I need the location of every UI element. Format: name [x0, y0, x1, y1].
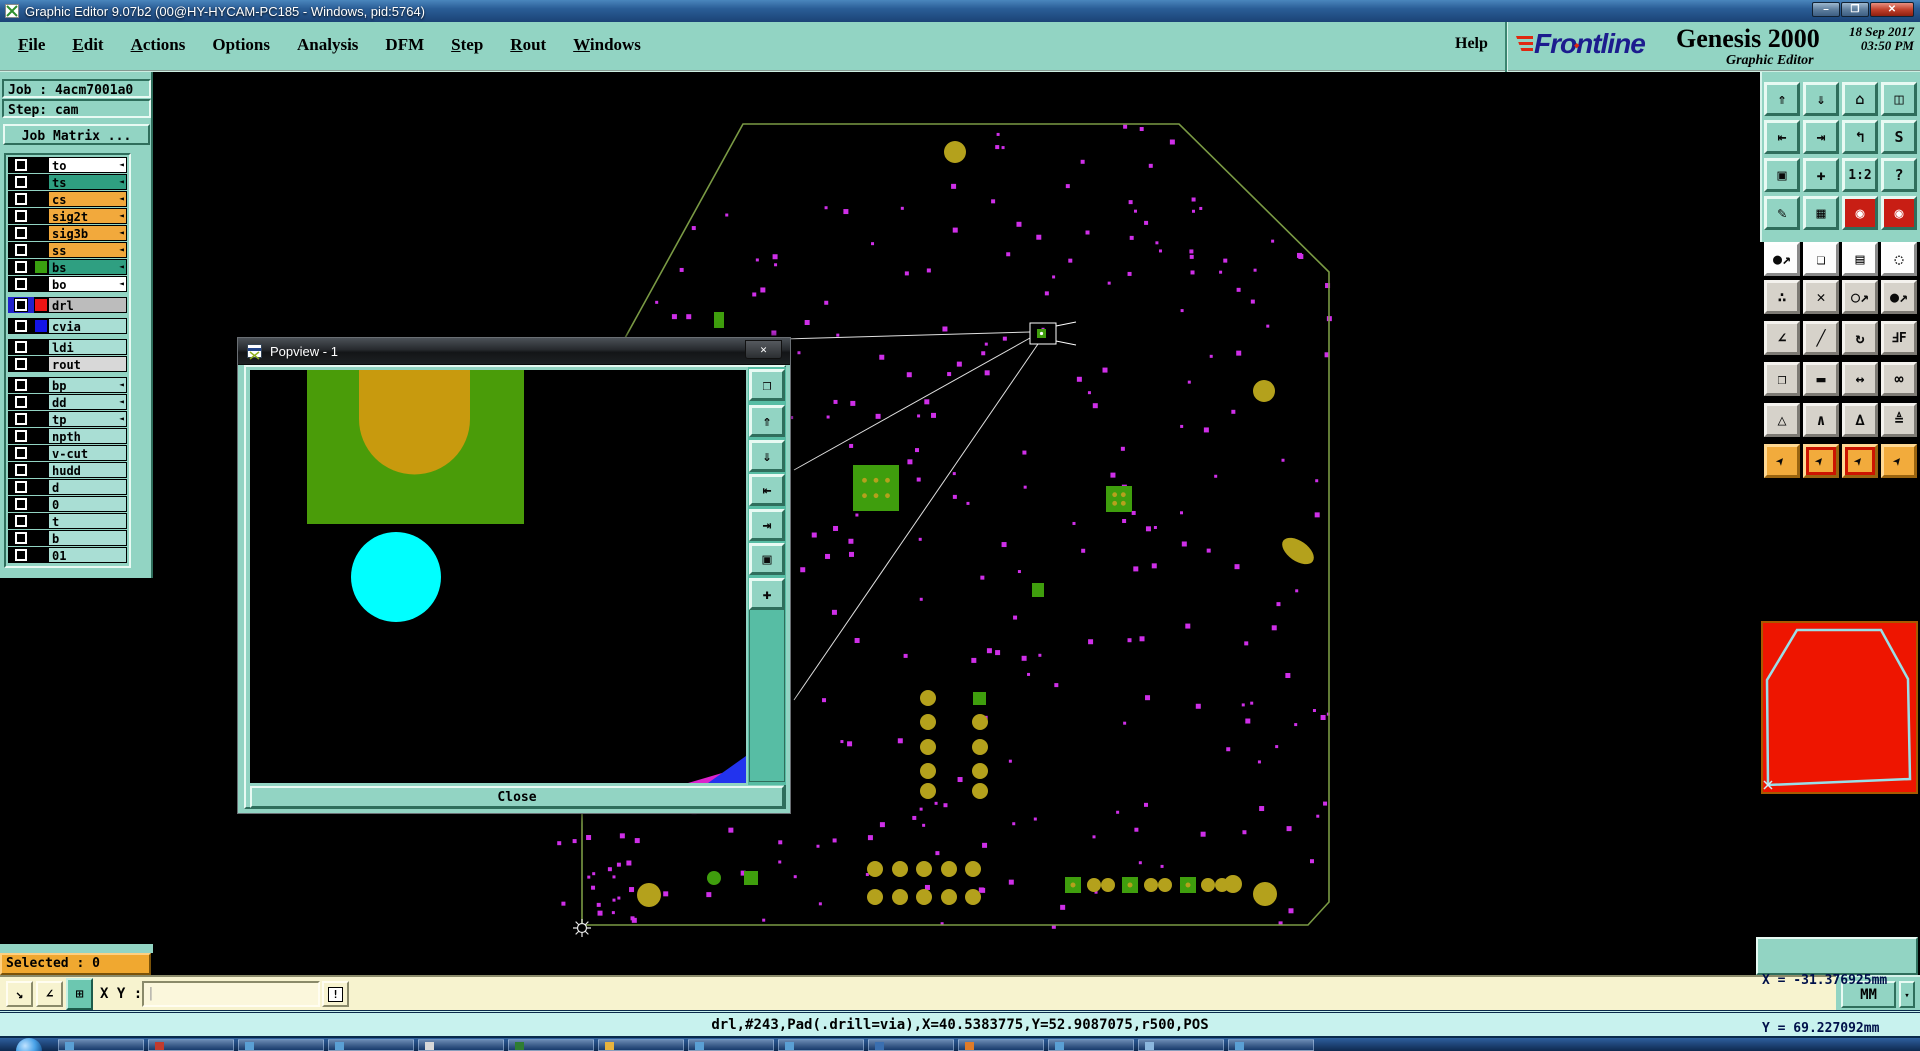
filled-endpoint-button[interactable]: ●↗	[1881, 280, 1917, 314]
clip-area-button[interactable]: ◌	[1881, 242, 1917, 276]
layer-row-cs[interactable]: cs◄	[8, 191, 127, 207]
peak-measure-icon: ≜	[1894, 413, 1903, 428]
layer-chip-cell	[34, 445, 48, 461]
taskbar-app-icon	[245, 1042, 254, 1050]
mirror-text-button[interactable]: ℲF	[1881, 321, 1917, 355]
layer-name: to◄	[48, 157, 127, 173]
scale-1-2-button[interactable]: 1:2	[1842, 158, 1878, 192]
layer-row-v-cut[interactable]: v-cut	[8, 445, 127, 461]
layer-name: sig2t◄	[48, 208, 127, 224]
width-measure-icon: ↔	[1855, 372, 1864, 387]
time-text: 03:50 PM	[1849, 39, 1914, 53]
measure-ruler-icon: ▤	[1855, 252, 1864, 267]
layer-color-chip	[35, 261, 47, 273]
layer-checkbox[interactable]	[15, 320, 27, 332]
layer-checkbox[interactable]	[15, 159, 27, 171]
layer-checkbox[interactable]	[15, 379, 27, 391]
swap-pads-icon: ❐	[1777, 372, 1786, 387]
delete-feature-icon: ✕	[1816, 290, 1825, 305]
peak-line-icon: ∆	[1855, 413, 1864, 428]
highlight-net-button[interactable]: ◉	[1842, 196, 1878, 230]
layer-checkbox[interactable]	[15, 299, 27, 311]
popview-push-down-icon: ⇓	[762, 447, 771, 465]
layer-name: ldi	[48, 339, 127, 355]
layer-name: v-cut	[48, 445, 127, 461]
layer-color-chip	[35, 320, 47, 332]
open-endpoint-icon: ○↗	[1851, 290, 1869, 305]
layer-chip-cell	[34, 462, 48, 478]
menu-step[interactable]: Step	[451, 35, 483, 55]
layer-checkbox-cell	[8, 242, 34, 258]
menu-options[interactable]: Options	[212, 35, 270, 55]
window-title: Graphic Editor 9.07b2 (00@HY-HYCAM-PC185…	[25, 4, 425, 19]
popview-shift-right-icon: ⇥	[762, 516, 771, 534]
popview-push-up-icon: ⇑	[762, 412, 771, 430]
layer-chip-cell	[34, 547, 48, 563]
layer-checkbox-cell	[8, 276, 34, 292]
layer-name: cvia	[48, 318, 127, 334]
layer-row-ts[interactable]: ts◄	[8, 174, 127, 190]
logo-diamond-icon: ◆	[1574, 41, 1579, 51]
windows-taskbar[interactable]	[0, 1038, 1920, 1051]
layer-checkbox[interactable]	[15, 341, 27, 353]
close-button[interactable]: ✕	[1870, 2, 1914, 17]
query-icon: ?	[1894, 168, 1903, 183]
layer-row-sig2t[interactable]: sig2t◄	[8, 208, 127, 224]
layer-checkbox-cell	[8, 496, 34, 512]
snap-angle-button[interactable]: ∠	[36, 981, 63, 1007]
triangle-mark-icon: △	[1777, 413, 1786, 428]
product-subtitle: Graphic Editor	[1726, 53, 1814, 69]
command-bar: X Y : | ! <M1> - Select feature to highl…	[0, 975, 1836, 1010]
popview-close-x-button[interactable]: ✕	[745, 340, 782, 359]
layer-checkbox-cell	[8, 377, 34, 393]
taskbar-app-4[interactable]	[328, 1039, 414, 1051]
home-view-button[interactable]: ⌂	[1842, 82, 1878, 116]
layer-checkbox-cell	[8, 462, 34, 478]
peak-mark-icon: ∧	[1816, 413, 1825, 428]
drag-resize-button[interactable]: ↘	[6, 981, 33, 1007]
taskbar-app-icon	[875, 1042, 884, 1050]
layer-checkbox-cell	[8, 428, 34, 444]
taskbar-app-13[interactable]	[1138, 1039, 1224, 1051]
selected-count: Selected : 0	[0, 953, 151, 975]
layer-name: npth	[48, 428, 127, 444]
layer-name: t	[48, 513, 127, 529]
layer-checkbox[interactable]	[15, 413, 27, 425]
layer-checkbox-cell	[8, 445, 34, 461]
layer-chip-cell	[34, 428, 48, 444]
popview-dialog[interactable]: Popview - 1 ✕ ❐⇑⇓⇤⇥▣✚ Close	[237, 337, 791, 814]
layer-row-drl[interactable]: drl	[8, 297, 127, 313]
angle-measure-button[interactable]: ∠	[1764, 321, 1800, 355]
select-path-button[interactable]: ➤	[1881, 444, 1917, 478]
popview-titlebar[interactable]: Popview - 1 ✕	[238, 338, 790, 365]
datetime: 18 Sep 2017 03:50 PM	[1849, 25, 1914, 53]
alert-icon: !	[328, 987, 343, 1002]
layer-list: to◄ts◄cs◄sig2t◄sig3b◄ss◄bs◄bo◄drlcvialdi…	[4, 153, 131, 568]
open-endpoint-button[interactable]: ○↗	[1842, 280, 1878, 314]
taskbar-app-5[interactable]	[418, 1039, 504, 1051]
pan-left-button[interactable]: ⇤	[1764, 120, 1800, 154]
step-label: Step: cam	[2, 99, 151, 118]
layer-arrow-icon: ◄	[119, 211, 124, 220]
taskbar-app-icon	[335, 1042, 344, 1050]
move-feature-button[interactable]: ●↗	[1764, 242, 1800, 276]
layer-row-dd[interactable]: dd◄	[8, 394, 127, 410]
highlight-box	[1030, 322, 1076, 345]
layer-row-0[interactable]: 0	[8, 496, 127, 512]
layer-checkbox[interactable]	[15, 515, 27, 527]
popview-popout-window-button[interactable]: ❐	[749, 369, 785, 401]
serpentine-icon: S	[1894, 130, 1903, 145]
layer-checkbox-cell	[8, 259, 34, 275]
layer-name: d	[48, 479, 127, 495]
layer-name: hudd	[48, 462, 127, 478]
drag-resize-icon: ↘	[16, 987, 24, 1002]
pan-right-button[interactable]: ⇥	[1803, 120, 1839, 154]
taskbar-app-12[interactable]	[1048, 1039, 1134, 1051]
menu-bar: FileEditActionsOptionsAnalysisDFMStepRou…	[0, 22, 1920, 72]
layer-name: ss◄	[48, 242, 127, 258]
layer-row-hudd[interactable]: hudd	[8, 462, 127, 478]
layer-checkbox-cell	[8, 191, 34, 207]
layer-chip-cell	[34, 530, 48, 546]
layer-chip-cell	[34, 394, 48, 410]
layer-checkbox-cell	[8, 318, 34, 334]
input-caret: |	[147, 986, 155, 1001]
layer-checkbox[interactable]	[15, 261, 27, 273]
taskbar-app-9[interactable]	[778, 1039, 864, 1051]
taskbar-app-icon	[1235, 1042, 1244, 1050]
rotate-icon: ↻	[1855, 331, 1864, 346]
triangle-mark-button[interactable]: △	[1764, 403, 1800, 437]
zoom-out-button[interactable]: ⇓	[1803, 82, 1839, 116]
measure-ruler-button[interactable]: ▤	[1842, 242, 1878, 276]
layer-chip-cell	[34, 377, 48, 393]
taskbar-app-icon	[785, 1042, 794, 1050]
zoom-fit-icon: ▣	[1777, 168, 1786, 183]
popview-scroll-track[interactable]	[749, 607, 785, 782]
taskbar-app-8[interactable]	[688, 1039, 774, 1051]
menu-file[interactable]: File	[18, 35, 45, 55]
zoom-in-button[interactable]: ⇑	[1764, 82, 1800, 116]
layer-chip-cell	[34, 496, 48, 512]
layer-checkbox-cell	[8, 339, 34, 355]
layer-arrow-icon: ◄	[119, 262, 124, 271]
date-text: 18 Sep 2017	[1849, 25, 1914, 39]
width-measure-button[interactable]: ↔	[1842, 362, 1878, 396]
draw-tools-icon: ✎	[1777, 206, 1786, 221]
angle-measure-icon: ∠	[1777, 331, 1786, 346]
layer-checkbox[interactable]	[15, 430, 27, 442]
select-path-icon: ➤	[1890, 453, 1907, 470]
right-toolbar: ⇑⇓⌂◫⇤⇥↰S▣✚1:2?✎▦◉◉●↗❏▤◌∴✕○↗●↗∠╱↻ℲF❐▬↔∞△∧…	[1760, 72, 1920, 492]
popview-push-down-button[interactable]: ⇓	[749, 440, 785, 472]
popview-title: Popview - 1	[270, 344, 338, 359]
layer-chip-cell	[34, 479, 48, 495]
layer-checkbox[interactable]	[15, 549, 27, 561]
job-matrix-button[interactable]: Job Matrix ...	[3, 124, 150, 145]
taskbar-app-14[interactable]	[1228, 1039, 1314, 1051]
layer-row-cvia[interactable]: cvia	[8, 318, 127, 334]
layer-checkbox[interactable]	[15, 358, 27, 370]
taskbar-app-icon	[1055, 1042, 1064, 1050]
swap-pads-button[interactable]: ❐	[1764, 362, 1800, 396]
layer-row-sig3b[interactable]: sig3b◄	[8, 225, 127, 241]
layer-row-bs[interactable]: bs◄	[8, 259, 127, 275]
frontline-logo: Frontline	[1534, 28, 1645, 60]
copy-feature-icon: ❏	[1816, 252, 1825, 267]
taskbar-app-7[interactable]	[598, 1039, 684, 1051]
select-arrow-icon: ➤	[1773, 453, 1790, 470]
layer-checkbox[interactable]	[15, 498, 27, 510]
layer-row-to[interactable]: to◄	[8, 157, 127, 173]
layer-name: rout	[48, 356, 127, 372]
layer-row-t[interactable]: t	[8, 513, 127, 529]
layer-chip-cell	[34, 157, 48, 173]
pan-right-icon: ⇥	[1816, 130, 1825, 145]
popview-pan-expand-button[interactable]: ✚	[749, 578, 785, 610]
mirror-text-icon: ℲF	[1891, 332, 1906, 345]
job-label: Job : 4acm7001a0	[2, 79, 151, 98]
layer-checkbox-cell	[8, 530, 34, 546]
layer-chip-cell	[34, 174, 48, 190]
layer-checkbox-cell	[8, 225, 34, 241]
line-segment-button[interactable]: ▬	[1803, 362, 1839, 396]
scale-1-2-icon: 1:2	[1848, 169, 1871, 182]
layer-arrow-icon: ◄	[119, 194, 124, 203]
layer-checkbox-cell	[8, 174, 34, 190]
zoom-in-icon: ⇑	[1777, 92, 1786, 107]
layer-arrow-icon: ◄	[119, 397, 124, 406]
layer-arrow-icon: ◄	[119, 160, 124, 169]
taskbar-app-icon	[605, 1042, 614, 1050]
layer-row-bp[interactable]: bp◄	[8, 377, 127, 393]
taskbar-app-1[interactable]	[58, 1039, 144, 1051]
layer-checkbox-cell	[8, 356, 34, 372]
product-name: Genesis 2000	[1676, 24, 1820, 54]
line-draw-button[interactable]: ╱	[1803, 321, 1839, 355]
touch-circles-button[interactable]: ∞	[1881, 362, 1917, 396]
alert-button[interactable]: !	[322, 981, 349, 1007]
layer-name: tp◄	[48, 411, 127, 427]
layer-name: cs◄	[48, 191, 127, 207]
restore-button[interactable]: ❐	[1841, 2, 1869, 17]
start-button[interactable]	[16, 1038, 42, 1051]
layer-arrow-icon: ◄	[119, 177, 124, 186]
menu-rout[interactable]: Rout	[510, 35, 546, 55]
popview-pan-expand-icon: ✚	[762, 585, 771, 603]
layer-checkbox-cell	[8, 513, 34, 529]
peak-measure-button[interactable]: ≜	[1881, 403, 1917, 437]
coordinate-readout: X = -31.376925mm Y = 69.227092mm	[1756, 937, 1918, 975]
taskbar-app-icon	[1145, 1042, 1154, 1050]
popview-canvas[interactable]	[250, 370, 746, 783]
xy-label: X Y :	[100, 986, 142, 1002]
select-arrow-button[interactable]: ➤	[1764, 444, 1800, 478]
layer-chip-cell	[34, 276, 48, 292]
layer-checkbox[interactable]	[15, 447, 27, 459]
menu-analysis[interactable]: Analysis	[297, 35, 358, 55]
layer-checkbox[interactable]	[15, 481, 27, 493]
layer-checkbox[interactable]	[15, 396, 27, 408]
layer-name: drl	[48, 297, 127, 313]
grid-window-icon: ⊞	[76, 987, 84, 1002]
layer-row-01[interactable]: 01	[8, 547, 127, 563]
popview-toolbar: ❐⇑⇓⇤⇥▣✚	[748, 367, 786, 785]
menu-edit[interactable]: Edit	[72, 35, 103, 55]
layer-checkbox[interactable]	[15, 244, 27, 256]
xy-window-icon: ◫	[1894, 92, 1903, 107]
layer-chip-cell	[34, 208, 48, 224]
pan-center-button[interactable]: ✚	[1803, 158, 1839, 192]
layer-name: bp◄	[48, 377, 127, 393]
layer-checkbox-cell	[8, 208, 34, 224]
touch-circles-icon: ∞	[1894, 372, 1903, 387]
taskbar-app-icon	[515, 1042, 524, 1050]
layer-arrow-icon: ◄	[119, 228, 124, 237]
select-frame-button[interactable]: ➤	[1803, 444, 1839, 478]
layer-chip-cell	[34, 242, 48, 258]
popview-shift-left-button[interactable]: ⇤	[749, 474, 785, 506]
symbol-preview	[1761, 621, 1918, 794]
minimize-button[interactable]: –	[1812, 2, 1840, 17]
pan-center-icon: ✚	[1816, 168, 1825, 183]
layer-chip-cell	[34, 339, 48, 355]
menu-dfm[interactable]: DFM	[385, 35, 424, 55]
taskbar-app-2[interactable]	[148, 1039, 234, 1051]
layer-row-tp[interactable]: tp◄	[8, 411, 127, 427]
layer-checkbox-cell	[8, 547, 34, 563]
copy-feature-button[interactable]: ❏	[1803, 242, 1839, 276]
layer-checkbox-cell	[8, 297, 34, 313]
taskbar-app-11[interactable]	[958, 1039, 1044, 1051]
undo-view-icon: ↰	[1855, 130, 1864, 145]
clip-area-icon: ◌	[1894, 252, 1903, 267]
layer-checkbox[interactable]	[15, 278, 27, 290]
layer-name: 01	[48, 547, 127, 563]
popview-close-button[interactable]: Close	[250, 786, 784, 808]
zoom-out-icon: ⇓	[1816, 92, 1825, 107]
taskbar-app-10[interactable]	[868, 1039, 954, 1051]
menu-help[interactable]: Help	[1455, 35, 1488, 53]
popview-popout-window-icon: ❐	[762, 376, 771, 394]
sidebar-footer-strip	[0, 944, 153, 953]
xy-input[interactable]: |	[142, 981, 320, 1007]
layer-checkbox[interactable]	[15, 193, 27, 205]
grid-window-button[interactable]: ⊞	[66, 978, 93, 1010]
chain-select-button[interactable]: ∴	[1764, 280, 1800, 314]
highlight-net-2-icon: ◉	[1894, 206, 1903, 221]
move-feature-icon: ●↗	[1773, 252, 1791, 267]
layer-row-b[interactable]: b	[8, 530, 127, 546]
layer-checkbox[interactable]	[15, 210, 27, 222]
rotate-button[interactable]: ↻	[1842, 321, 1878, 355]
layer-chip-cell	[34, 356, 48, 372]
readout-x: X = -31.376925mm	[1762, 973, 1916, 989]
pan-left-icon: ⇤	[1777, 130, 1786, 145]
layer-name: ts◄	[48, 174, 127, 190]
layer-row-bo[interactable]: bo◄	[8, 276, 127, 292]
popview-zoom-contract-icon: ▣	[762, 550, 771, 568]
undo-view-button[interactable]: ↰	[1842, 120, 1878, 154]
layer-row-d[interactable]: d	[8, 479, 127, 495]
taskbar-app-icon	[155, 1042, 164, 1050]
layer-row-ldi[interactable]: ldi	[8, 339, 127, 355]
xy-window-button[interactable]: ◫	[1881, 82, 1917, 116]
layer-name: dd◄	[48, 394, 127, 410]
layer-row-rout[interactable]: rout	[8, 356, 127, 372]
snap-angle-icon: ∠	[46, 987, 54, 1002]
menu-actions[interactable]: Actions	[131, 35, 186, 55]
grid-toggle-button[interactable]: ▦	[1803, 196, 1839, 230]
serpentine-button[interactable]: S	[1881, 120, 1917, 154]
popview-push-up-button[interactable]: ⇑	[749, 405, 785, 437]
layer-checkbox[interactable]	[15, 227, 27, 239]
cursor-compass-icon	[573, 919, 591, 937]
layer-row-ss[interactable]: ss◄	[8, 242, 127, 258]
query-button[interactable]: ?	[1881, 158, 1917, 192]
delete-feature-button[interactable]: ✕	[1803, 280, 1839, 314]
popview-shift-right-button[interactable]: ⇥	[749, 509, 785, 541]
taskbar-app-3[interactable]	[238, 1039, 324, 1051]
select-region-button[interactable]: ➤	[1842, 444, 1878, 478]
layer-name: 0	[48, 496, 127, 512]
layer-checkbox[interactable]	[15, 464, 27, 476]
layer-arrow-icon: ◄	[119, 279, 124, 288]
layer-color-chip	[35, 299, 47, 311]
layer-checkbox[interactable]	[15, 176, 27, 188]
line-segment-icon: ▬	[1816, 372, 1825, 387]
layer-row-npth[interactable]: npth	[8, 428, 127, 444]
feature-info-bar: drl,#243,Pad(.drill=via),X=40.5383775,Y=…	[0, 1010, 1920, 1038]
layer-checkbox-cell	[8, 157, 34, 173]
readout-y: Y = 69.227092mm	[1762, 1021, 1916, 1037]
peak-line-button[interactable]: ∆	[1842, 403, 1878, 437]
layer-chip-cell	[34, 225, 48, 241]
layer-chip-cell	[34, 318, 48, 334]
highlight-net-2-button[interactable]: ◉	[1881, 196, 1917, 230]
popview-icon	[247, 344, 262, 358]
popview-zoom-contract-button[interactable]: ▣	[749, 543, 785, 575]
peak-mark-button[interactable]: ∧	[1803, 403, 1839, 437]
application-window: Graphic Editor 9.07b2 (00@HY-HYCAM-PC185…	[0, 0, 1920, 1051]
title-bar[interactable]: Graphic Editor 9.07b2 (00@HY-HYCAM-PC185…	[0, 0, 1920, 22]
layer-chip-cell	[34, 297, 48, 313]
layer-arrow-icon: ◄	[119, 380, 124, 389]
layer-chip-cell	[34, 411, 48, 427]
zoom-fit-button[interactable]: ▣	[1764, 158, 1800, 192]
draw-tools-button[interactable]: ✎	[1764, 196, 1800, 230]
menu-windows[interactable]: Windows	[573, 35, 641, 55]
taskbar-app-6[interactable]	[508, 1039, 594, 1051]
highlight-net-icon: ◉	[1855, 206, 1864, 221]
layer-name: b	[48, 530, 127, 546]
layer-checkbox[interactable]	[15, 532, 27, 544]
layer-arrow-icon: ◄	[119, 245, 124, 254]
layer-checkbox-cell	[8, 411, 34, 427]
layer-checkbox-cell	[8, 394, 34, 410]
layer-name: bs◄	[48, 259, 127, 275]
layer-checkbox-cell	[8, 479, 34, 495]
select-region-icon: ➤	[1851, 453, 1868, 470]
layer-chip-cell	[34, 191, 48, 207]
layer-arrow-icon: ◄	[119, 414, 124, 423]
sidebar: Job : 4acm7001a0 Step: cam Job Matrix ..…	[0, 72, 153, 578]
taskbar-app-icon	[65, 1042, 74, 1050]
taskbar-app-icon	[695, 1042, 704, 1050]
